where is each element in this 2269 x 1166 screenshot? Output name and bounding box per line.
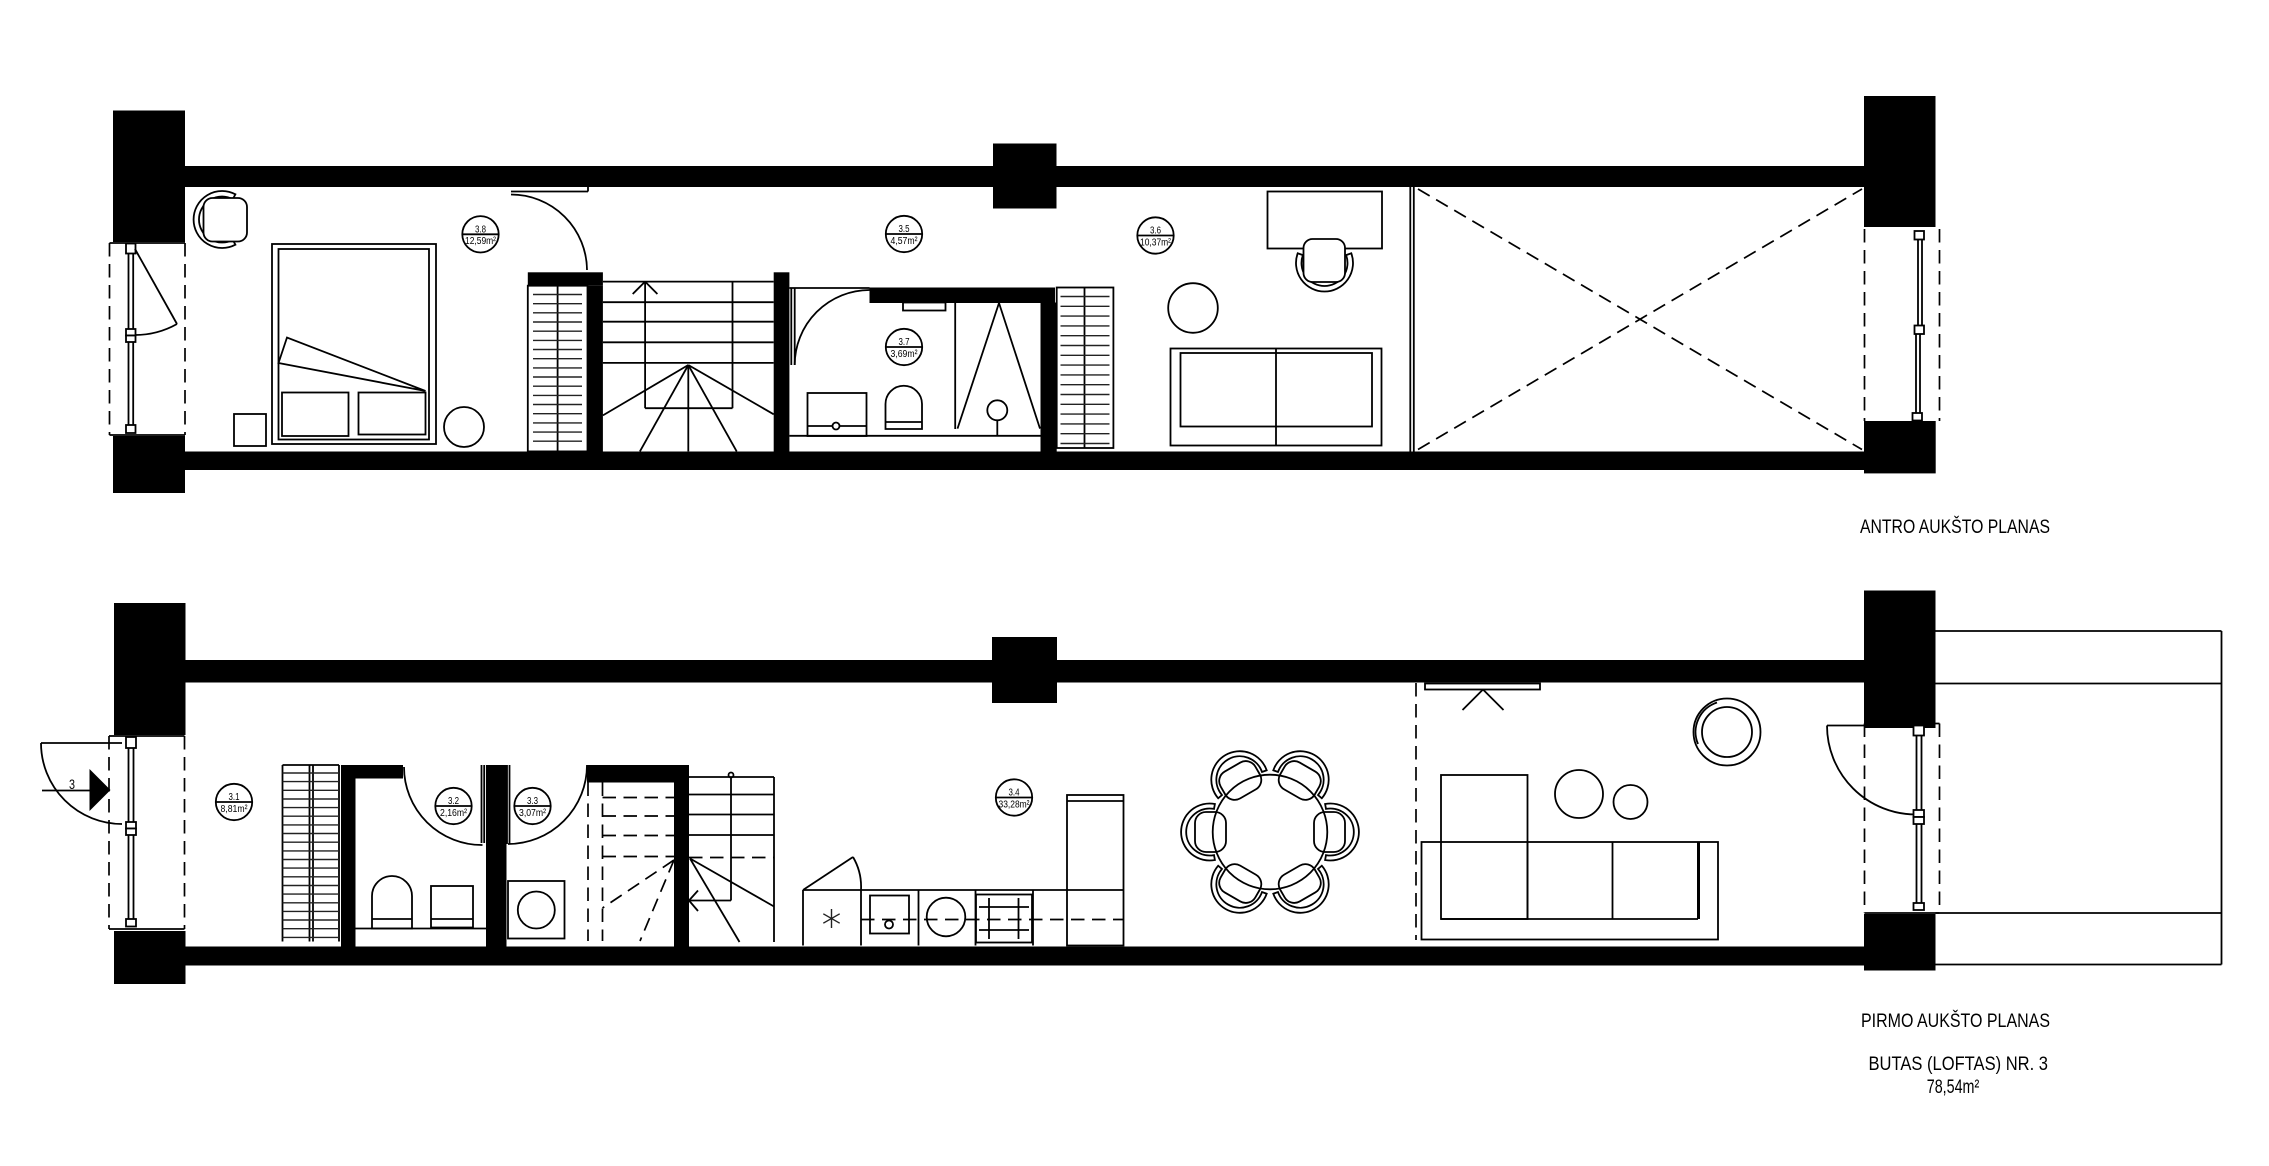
svg-text:4,57m²: 4,57m² [891,236,919,247]
svg-text:3.5: 3.5 [899,224,910,235]
svg-text:3,07m²: 3,07m² [519,808,547,819]
svg-text:3.1: 3.1 [229,792,240,803]
svg-text:33,28m²: 33,28m² [999,799,1031,810]
svg-text:ANTRO AUKŠTO PLANAS: ANTRO AUKŠTO PLANAS [1860,515,2050,538]
svg-text:8,81m²: 8,81m² [221,804,249,815]
svg-text:3.7: 3.7 [899,337,910,348]
svg-text:2,16m²: 2,16m² [440,808,468,819]
svg-text:3.4: 3.4 [1009,788,1020,799]
svg-text:BUTAS (LOFTAS) NR. 3: BUTAS (LOFTAS) NR. 3 [1869,1053,2049,1075]
svg-text:10,37m²: 10,37m² [1140,237,1172,248]
svg-text:3.8: 3.8 [475,225,486,236]
svg-text:PIRMO AUKŠTO PLANAS: PIRMO AUKŠTO PLANAS [1861,1009,2050,1032]
svg-text:3,69m²: 3,69m² [891,349,919,360]
svg-text:78,54m²: 78,54m² [1927,1076,1980,1098]
svg-text:3.6: 3.6 [1150,226,1161,237]
svg-text:12,59m²: 12,59m² [465,236,497,247]
svg-text:3.3: 3.3 [527,796,538,807]
svg-text:3.2: 3.2 [448,796,459,807]
